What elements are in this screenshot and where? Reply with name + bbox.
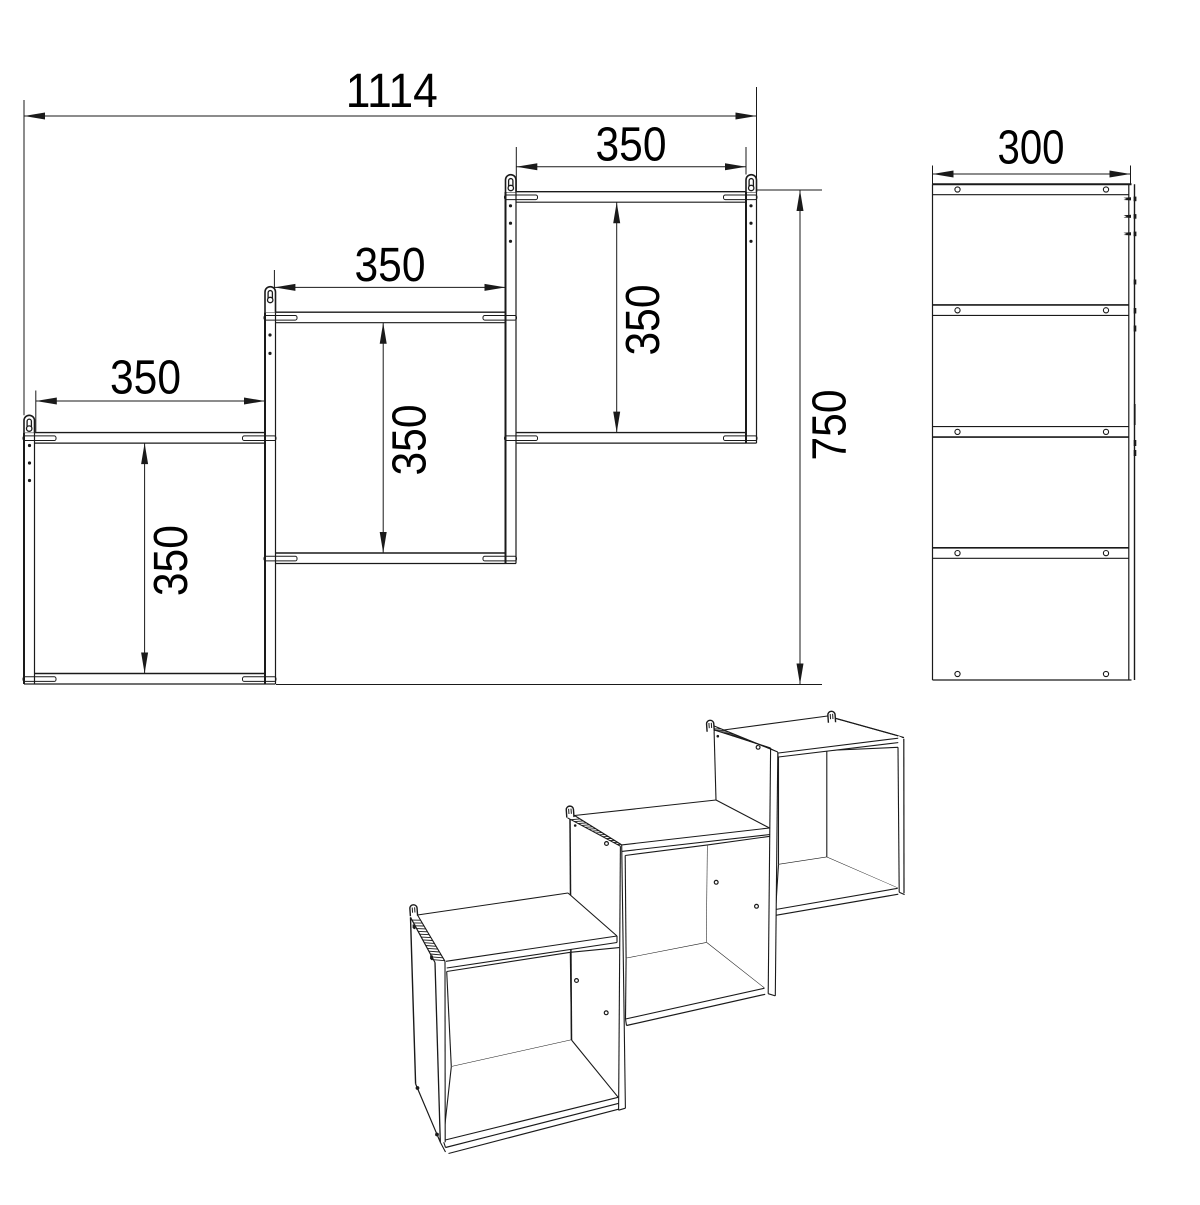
- svg-text:350: 350: [110, 352, 181, 405]
- svg-text:350: 350: [355, 239, 426, 292]
- svg-text:350: 350: [617, 285, 670, 356]
- svg-text:350: 350: [145, 525, 198, 596]
- svg-text:750: 750: [804, 390, 857, 461]
- svg-text:350: 350: [596, 119, 667, 172]
- svg-text:300: 300: [998, 122, 1065, 175]
- svg-text:350: 350: [384, 405, 437, 476]
- svg-text:1114: 1114: [346, 65, 438, 118]
